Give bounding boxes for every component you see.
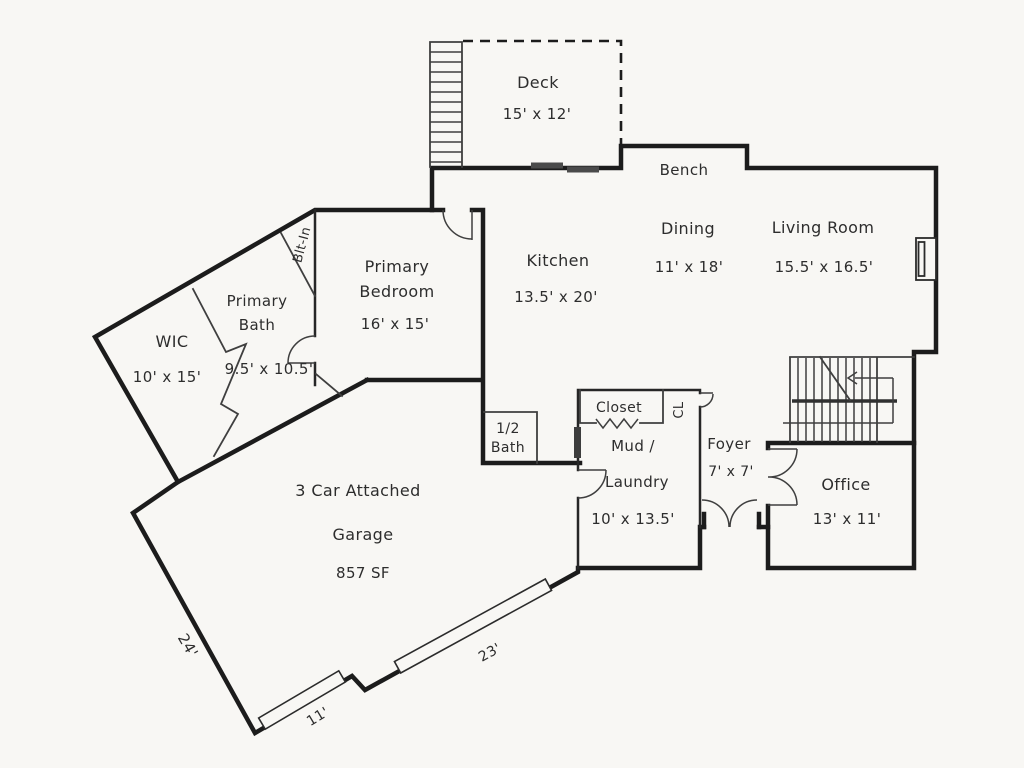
garage-door-11ft (259, 671, 346, 729)
label-office-dims: 13' x 11' (813, 510, 881, 528)
label-bath-line1: Primary (227, 292, 288, 310)
dim-garage-door-small: 11' (304, 704, 332, 729)
label-office-name: Office (821, 475, 870, 494)
label-halfbath-line1: 1/2 (496, 421, 520, 437)
garage-top-wall (178, 380, 367, 482)
label-bench: Bench (660, 161, 709, 179)
label-halfbath-line2: Bath (491, 440, 525, 456)
sliding-door-panel-1 (531, 163, 563, 169)
label-living-name: Living Room (772, 218, 875, 237)
entry-double-doors (702, 500, 757, 527)
label-foyer-dims: 7' x 7' (708, 464, 754, 480)
mud-pocket-door (574, 427, 581, 458)
floor-plan-canvas: Deck 15' x 12' Bench Dining 11' x 18' Li… (0, 0, 1024, 768)
label-kitchen-dims: 13.5' x 20' (514, 288, 598, 306)
label-foyer-name: Foyer (707, 435, 751, 453)
label-kitchen-name: Kitchen (527, 251, 590, 270)
garage-door-23ft (394, 579, 551, 673)
deck-outline (463, 41, 621, 146)
bath-corner-wall (316, 374, 342, 396)
label-bath-dims: 9.5' x 10.5' (225, 360, 314, 378)
office-french-doors (768, 449, 797, 505)
label-dining-name: Dining (661, 219, 715, 238)
label-deck-name: Deck (517, 73, 559, 92)
floor-plan-page: Deck 15' x 12' Bench Dining 11' x 18' Li… (0, 0, 1024, 768)
bedroom-walls (367, 210, 580, 463)
bedroom-door (443, 210, 472, 240)
cl-closet-door (700, 393, 713, 407)
label-mud-line1: Mud / (611, 437, 655, 455)
label-closet: Closet (596, 400, 642, 416)
sliding-door-panel-2 (567, 167, 599, 173)
deck-stairs-treads (430, 52, 462, 162)
label-mud-line2: Laundry (605, 473, 669, 491)
label-mud-dims: 10' x 13.5' (591, 510, 675, 528)
label-wic-name: WIC (156, 332, 189, 351)
dim-garage-left-wall: 24' (174, 630, 202, 660)
label-living-dims: 15.5' x 16.5' (775, 258, 874, 276)
label-garage-line2: Garage (333, 525, 394, 544)
label-bath-line2: Bath (239, 316, 275, 334)
label-wic-dims: 10' x 15' (133, 368, 201, 386)
label-garage-line1: 3 Car Attached (295, 481, 420, 500)
room-labels: Deck 15' x 12' Bench Dining 11' x 18' Li… (133, 73, 881, 730)
label-built-in: Blt-In (291, 225, 315, 264)
label-deck-dims: 15' x 12' (503, 105, 571, 123)
label-bedroom-line2: Bedroom (359, 282, 434, 301)
dim-garage-door-large: 23' (476, 640, 504, 665)
label-garage-line3: 857 SF (336, 564, 390, 582)
mud-garage-door (578, 470, 606, 498)
bath-door (288, 336, 315, 363)
staircase (783, 357, 914, 442)
living-room-window-inner (919, 242, 925, 276)
label-dining-dims: 11' x 18' (655, 258, 723, 276)
deck-stairs-outline (430, 42, 462, 167)
closet-rod-symbol (596, 419, 638, 428)
label-cl: CL (672, 401, 687, 418)
label-bedroom-dims: 16' x 15' (361, 315, 429, 333)
label-bedroom-line1: Primary (365, 257, 430, 276)
